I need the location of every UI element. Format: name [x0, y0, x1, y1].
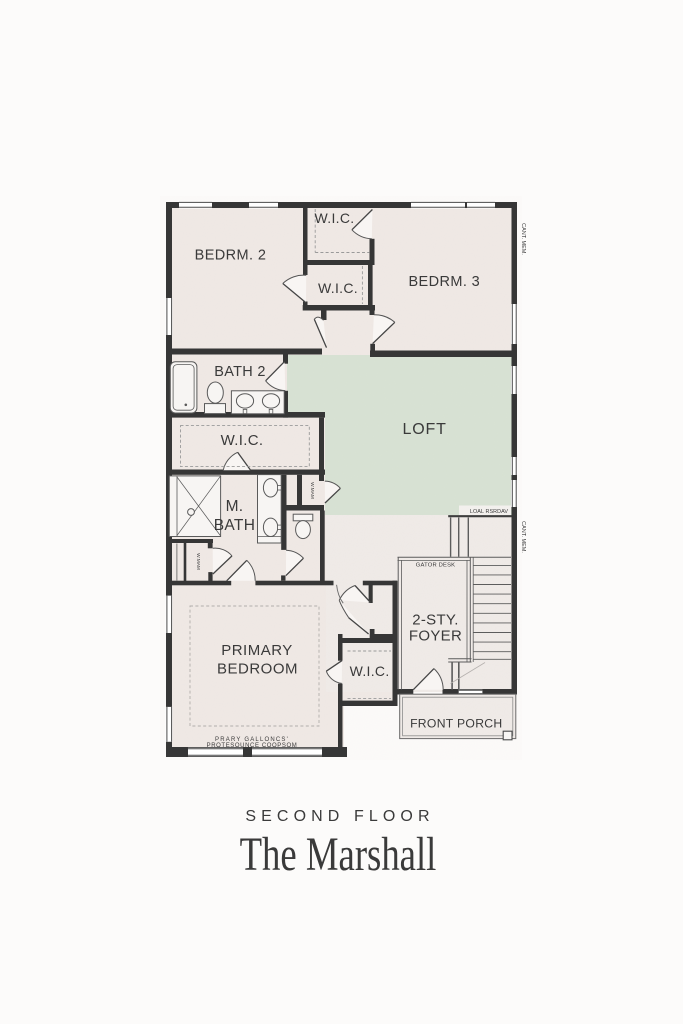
svg-text:CANT. MEM.: CANT. MEM. [520, 223, 526, 255]
svg-text:W.I.C.: W.I.C. [315, 210, 355, 226]
svg-text:W.I.C.: W.I.C. [221, 432, 264, 449]
svg-text:PROTESOUNCE COOPSOM: PROTESOUNCE COOPSOM [207, 743, 298, 749]
svg-text:BEDRM. 3: BEDRM. 3 [408, 274, 480, 290]
svg-text:BATH: BATH [214, 517, 255, 534]
svg-text:M.: M. [226, 498, 244, 515]
svg-text:BATH 2: BATH 2 [214, 364, 266, 380]
svg-text:LOFT: LOFT [403, 421, 447, 438]
svg-text:PRIMARY: PRIMARY [221, 642, 293, 659]
svg-text:SECOND FLOOR: SECOND FLOOR [245, 808, 434, 825]
svg-text:FRONT PORCH: FRONT PORCH [410, 717, 502, 731]
svg-text:The Marshall: The Marshall [240, 828, 437, 881]
svg-text:W.I.C.: W.I.C. [318, 280, 358, 296]
svg-text:2-STY.: 2-STY. [412, 612, 459, 629]
svg-text:BEDRM. 2: BEDRM. 2 [195, 248, 267, 264]
svg-text:CANT. MEM.: CANT. MEM. [520, 521, 526, 553]
svg-text:GATOR DESK: GATOR DESK [416, 563, 455, 569]
svg-text:W.MAM: W.MAM [309, 482, 315, 499]
svg-text:BEDROOM: BEDROOM [217, 660, 298, 677]
svg-text:LOAL RSRDAV: LOAL RSRDAV [470, 509, 509, 515]
svg-text:W.I.C.: W.I.C. [350, 663, 390, 679]
svg-text:FOYER: FOYER [409, 627, 462, 644]
svg-text:PRARY GALLONCS': PRARY GALLONCS' [215, 737, 289, 743]
svg-text:W.MAM: W.MAM [195, 553, 201, 570]
